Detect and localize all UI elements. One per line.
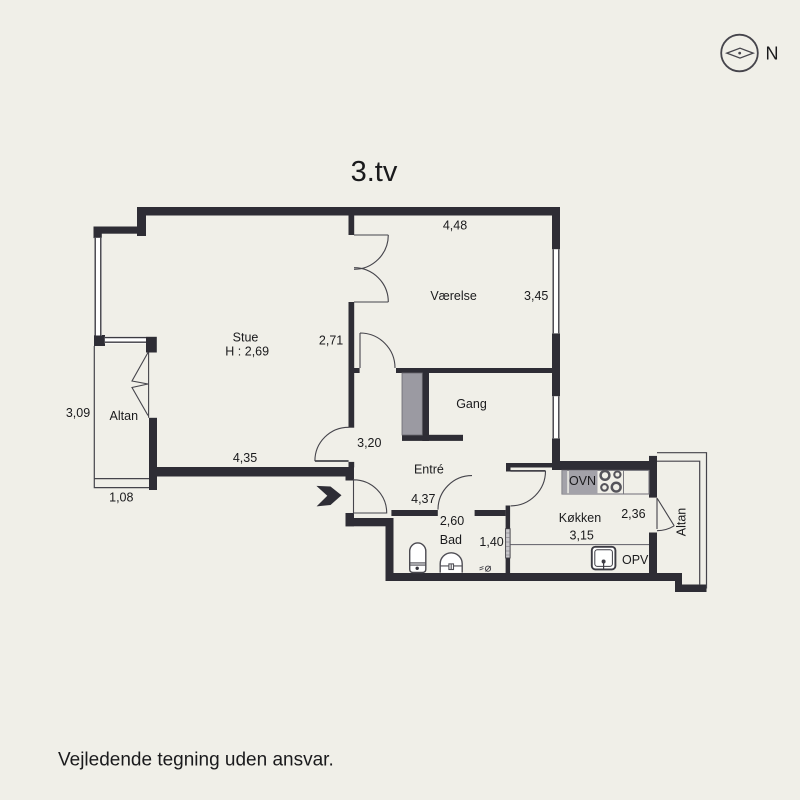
svg-text:Entré: Entré <box>414 463 444 477</box>
svg-text:1,40: 1,40 <box>479 535 503 549</box>
svg-text:Altan: Altan <box>675 508 689 537</box>
svg-text:4,37: 4,37 <box>411 492 435 506</box>
svg-text:Værelse: Værelse <box>430 289 477 303</box>
svg-text:1,08: 1,08 <box>109 490 133 504</box>
svg-text:OPV: OPV <box>622 553 649 567</box>
svg-text:3,15: 3,15 <box>570 529 594 543</box>
svg-text:4,48: 4,48 <box>443 219 467 233</box>
svg-text:H : 2,69: H : 2,69 <box>225 344 269 358</box>
svg-text:3,20: 3,20 <box>357 436 381 450</box>
svg-text:OVN: OVN <box>569 474 596 488</box>
svg-text:2,36: 2,36 <box>621 507 645 521</box>
svg-text:Stue: Stue <box>233 331 259 345</box>
svg-text:4,35: 4,35 <box>233 451 257 465</box>
svg-text:N: N <box>766 44 779 64</box>
svg-text:Køkken: Køkken <box>559 511 601 525</box>
svg-text:2,71: 2,71 <box>319 334 343 348</box>
svg-text:2,60: 2,60 <box>440 514 464 528</box>
svg-text:Altan: Altan <box>110 409 139 423</box>
svg-text:Bad: Bad <box>440 533 462 547</box>
svg-text:3,09: 3,09 <box>66 406 90 420</box>
svg-text:Vejledende tegning uden ansvar: Vejledende tegning uden ansvar. <box>58 750 334 771</box>
svg-text:Gang: Gang <box>456 397 487 411</box>
svg-text:3.tv: 3.tv <box>351 156 398 188</box>
svg-text:3,45: 3,45 <box>524 289 548 303</box>
